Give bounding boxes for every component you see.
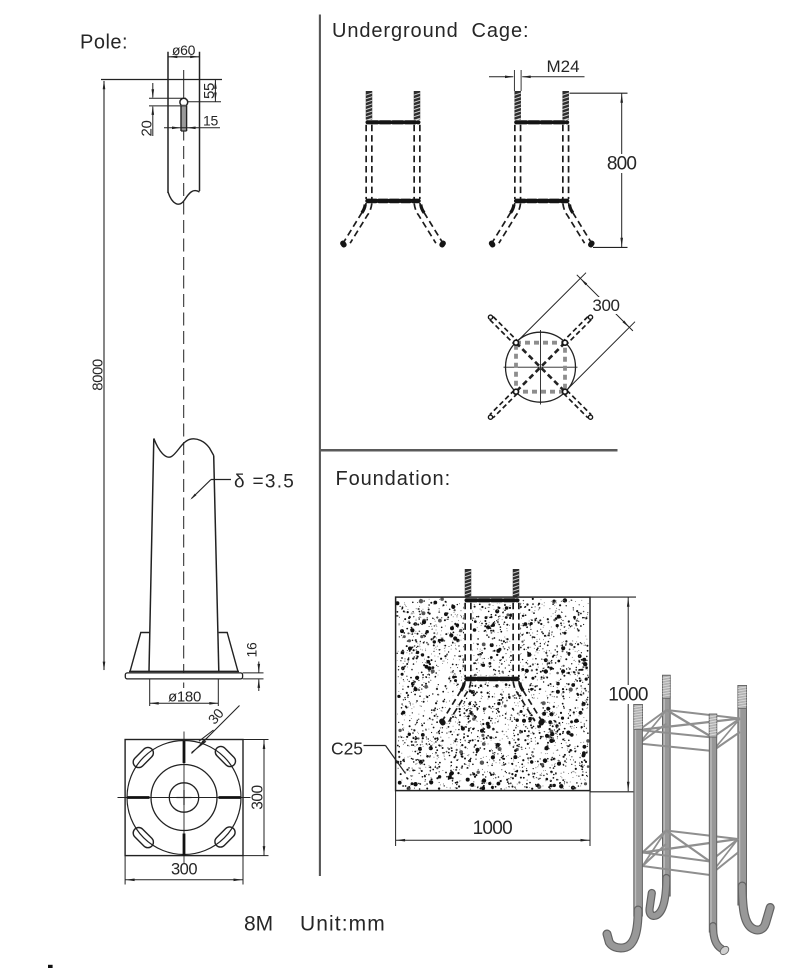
- svg-text:16: 16: [243, 642, 259, 657]
- svg-text:300: 300: [592, 296, 619, 315]
- svg-text:δ =3.5: δ =3.5: [234, 472, 295, 493]
- svg-text:M24: M24: [546, 57, 579, 76]
- svg-text:8M: 8M: [244, 913, 273, 936]
- svg-text:Underground Cage:: Underground Cage:: [332, 20, 529, 42]
- svg-text:Foundation:: Foundation:: [336, 468, 452, 490]
- svg-text:C25: C25: [331, 739, 363, 759]
- svg-text:ø60: ø60: [172, 42, 196, 58]
- svg-text:1000: 1000: [473, 818, 513, 839]
- svg-text:300: 300: [171, 861, 197, 879]
- svg-text:800: 800: [607, 154, 637, 175]
- svg-text:Pole:: Pole:: [80, 32, 128, 54]
- svg-text:ø180: ø180: [168, 689, 201, 706]
- svg-text:15: 15: [203, 113, 218, 129]
- svg-text:55: 55: [201, 83, 218, 99]
- svg-text:1000: 1000: [608, 685, 648, 706]
- svg-text:20: 20: [139, 120, 156, 136]
- svg-text:8000: 8000: [90, 359, 107, 391]
- svg-text:Unit:mm: Unit:mm: [300, 913, 386, 936]
- svg-text:300: 300: [249, 784, 266, 809]
